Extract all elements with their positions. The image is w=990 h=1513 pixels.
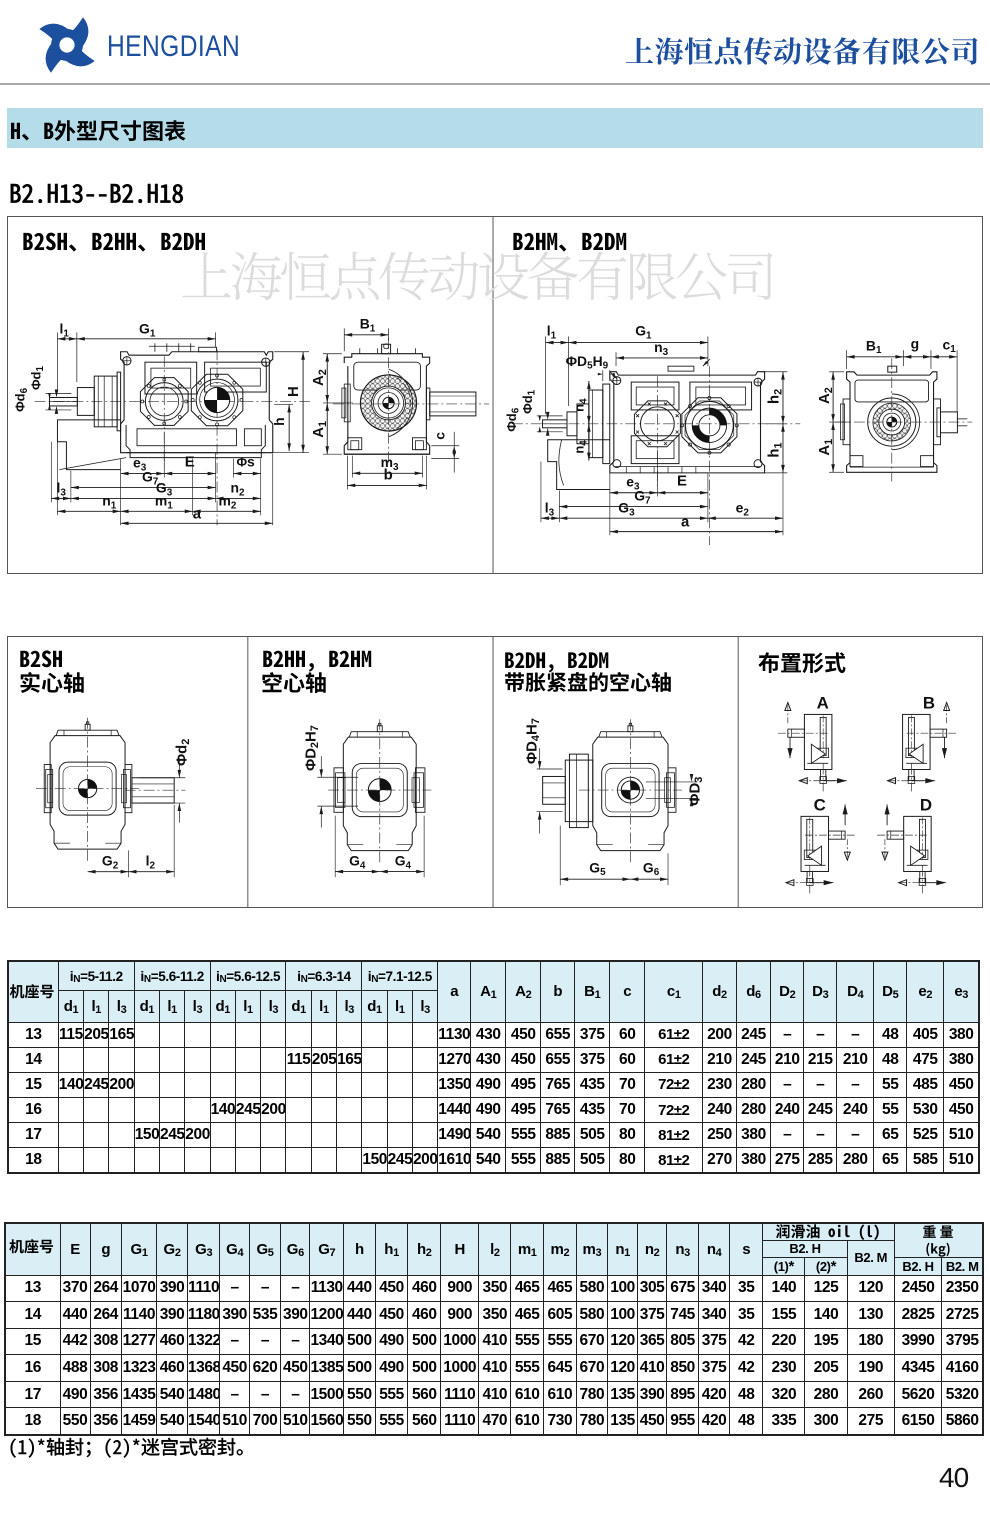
svg-text:ΦD3: ΦD3 [687,777,704,806]
svg-text:E: E [677,473,687,489]
svg-text:e2: e2 [736,499,750,518]
svg-text:G1: G1 [139,320,156,339]
svg-text:G4: G4 [395,852,412,871]
svg-text:D: D [920,796,932,815]
svg-text:g: g [911,335,920,351]
svg-text:B1: B1 [360,315,376,334]
svg-text:Φd1: Φd1 [29,366,46,390]
svg-text:h1: h1 [766,442,784,457]
svg-text:l3: l3 [56,479,66,498]
svg-text:l3: l3 [545,499,555,518]
svg-text:Φd2: Φd2 [174,739,191,766]
svg-text:ΦD4H7: ΦD4H7 [525,718,542,764]
svg-text:a: a [193,506,202,522]
svg-text:c1: c1 [942,336,956,355]
svg-text:B: B [923,693,935,712]
svg-text:n3: n3 [654,339,668,358]
svg-text:A1: A1 [817,439,835,456]
svg-text:A2: A2 [817,387,835,404]
svg-text:B1: B1 [866,337,882,356]
svg-text:A2: A2 [311,369,329,386]
svg-text:G3: G3 [618,499,635,518]
svg-text:ΦD2H7: ΦD2H7 [303,725,320,771]
svg-text:a: a [681,514,690,530]
svg-text:ΦD5H9: ΦD5H9 [566,353,609,371]
svg-text:h2: h2 [766,389,784,404]
svg-text:h: h [271,417,287,426]
svg-text:G2: G2 [102,852,119,871]
svg-text:A: A [817,693,829,712]
svg-text:A1: A1 [311,421,329,438]
svg-text:n4: n4 [572,440,590,454]
svg-text:c: c [431,432,447,440]
svg-text:Φd6: Φd6 [13,387,30,411]
svg-text:G5: G5 [589,859,606,878]
svg-text:G7: G7 [634,487,651,506]
svg-text:Φd6: Φd6 [504,407,521,431]
svg-text:H: H [286,386,302,397]
svg-text:Φs: Φs [236,454,255,470]
svg-text:n2: n2 [230,479,245,498]
svg-text:n4: n4 [572,398,590,412]
svg-text:n1: n1 [102,492,117,511]
svg-text:G6: G6 [643,859,660,878]
svg-text:Φd1: Φd1 [520,389,537,413]
svg-text:C: C [814,796,826,815]
svg-text:l1: l1 [547,322,557,341]
svg-text:l2: l2 [146,852,156,871]
svg-text:G1: G1 [635,322,652,341]
svg-text:E: E [185,455,195,471]
svg-text:G4: G4 [349,852,366,871]
svg-text:l1: l1 [59,320,69,339]
svg-text:b: b [384,468,393,484]
